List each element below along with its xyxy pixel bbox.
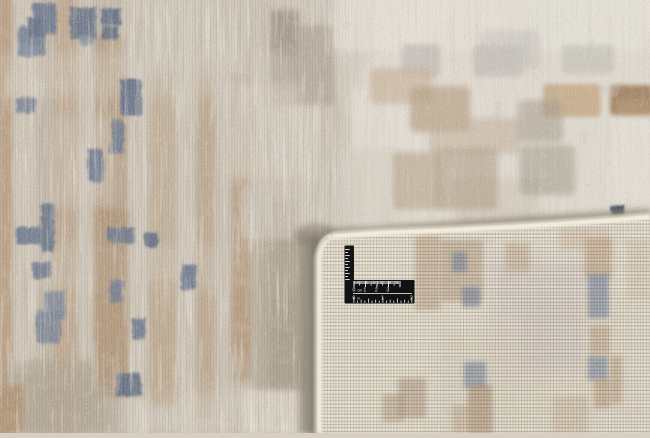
- svg-text:0: 0: [353, 296, 356, 302]
- svg-text:in: in: [358, 296, 361, 300]
- svg-text:1: 1: [363, 288, 366, 294]
- svg-text:2: 2: [375, 288, 378, 294]
- svg-text:2: 2: [410, 296, 413, 302]
- svg-text:0: 0: [353, 288, 356, 294]
- svg-text:1: 1: [381, 296, 384, 302]
- svg-text:cm: cm: [358, 289, 363, 293]
- svg-text:3: 3: [386, 288, 389, 294]
